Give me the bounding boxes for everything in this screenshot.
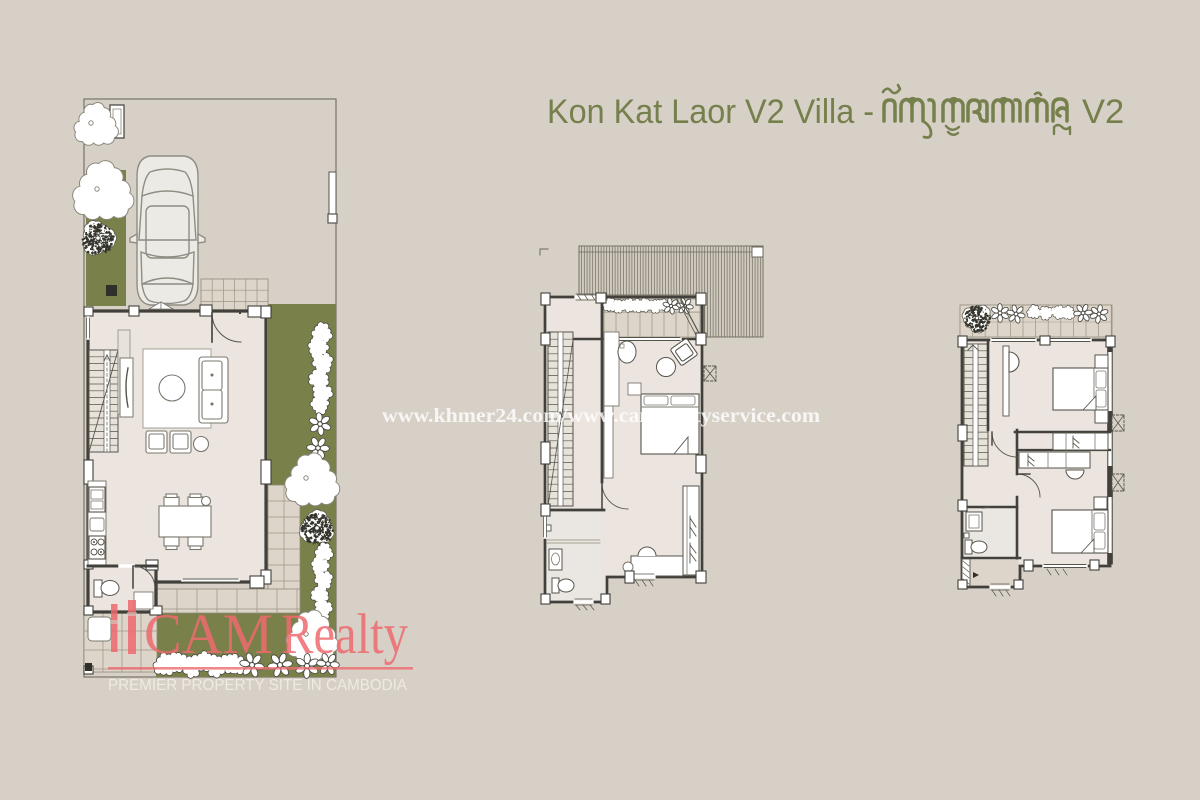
svg-text:PREMIER PROPERTY SITE IN CAMBO: PREMIER PROPERTY SITE IN CAMBODIA: [108, 677, 407, 694]
svg-text:CAM: CAM: [144, 603, 273, 666]
svg-text:Kon Kat Laor V2 Villa -: Kon Kat Laor V2 Villa -: [547, 93, 874, 131]
svg-text:www.khmer24.com/www.camrealtys: www.khmer24.com/www.camrealtyservice.com: [382, 405, 820, 427]
svg-text:Realty: Realty: [281, 603, 408, 666]
svg-text:V2: V2: [1082, 93, 1124, 131]
